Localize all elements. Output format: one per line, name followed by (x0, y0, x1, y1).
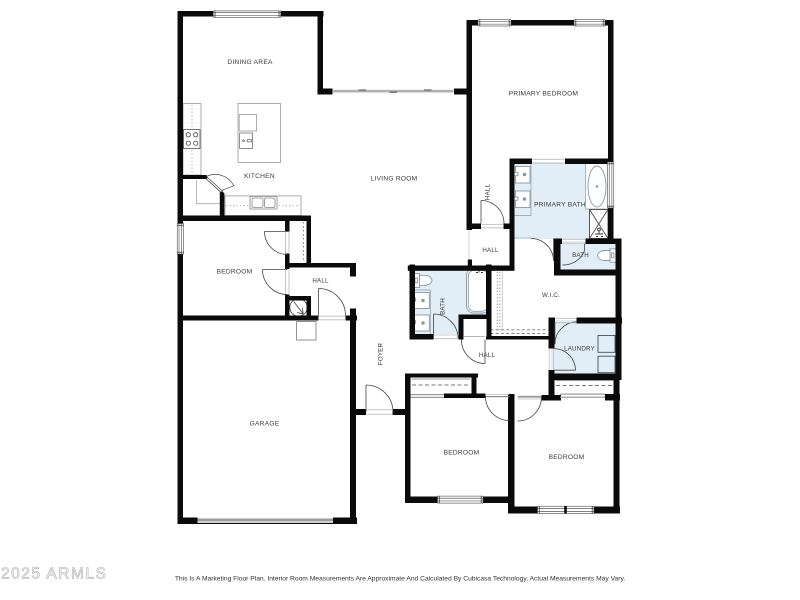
svg-text:BATH: BATH (440, 298, 447, 315)
svg-text:FOYER: FOYER (378, 343, 385, 366)
svg-text:HALL: HALL (485, 184, 492, 201)
svg-text:GARAGE: GARAGE (250, 421, 280, 428)
svg-text:HALL: HALL (312, 278, 329, 285)
svg-text:PRIMARY BEDROOM: PRIMARY BEDROOM (509, 91, 578, 98)
svg-text:BEDROOM: BEDROOM (444, 450, 480, 457)
svg-text:PRIMARY BATH: PRIMARY BATH (534, 202, 586, 209)
svg-text:HALL: HALL (482, 247, 499, 254)
svg-text:W.I.C.: W.I.C. (542, 292, 560, 299)
svg-text:DINING AREA: DINING AREA (227, 59, 273, 66)
svg-text:This Is A Marketing Floor Plan: This Is A Marketing Floor Plan. Interior… (175, 576, 626, 583)
svg-text:HALL: HALL (479, 352, 496, 359)
svg-text:BATH: BATH (572, 252, 589, 259)
svg-text:BEDROOM: BEDROOM (217, 269, 253, 276)
svg-text:KITCHEN: KITCHEN (244, 173, 275, 180)
svg-text:LAUNDRY: LAUNDRY (564, 346, 595, 353)
svg-text:2025 ARMLS: 2025 ARMLS (1, 566, 107, 583)
svg-text:LIVING ROOM: LIVING ROOM (371, 176, 418, 183)
svg-text:BEDROOM: BEDROOM (549, 454, 585, 461)
